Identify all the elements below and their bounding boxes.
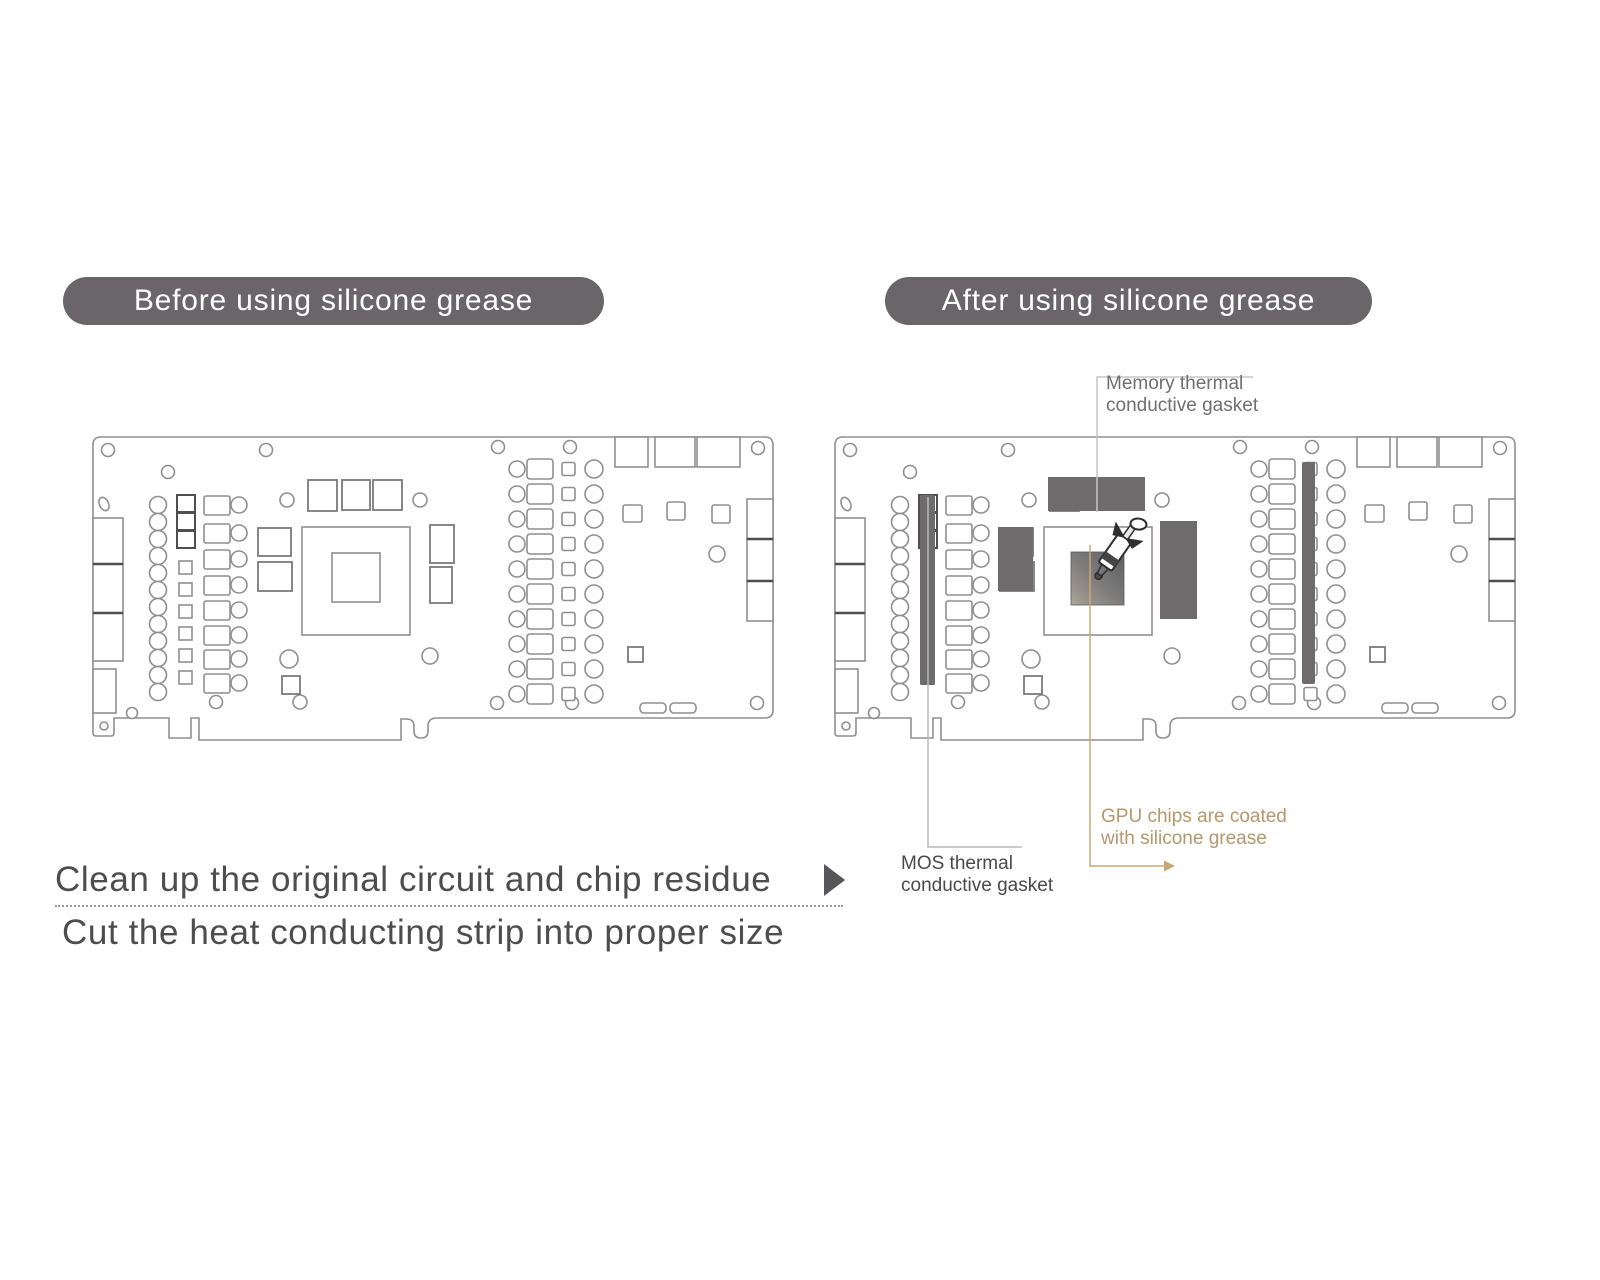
after-title-text: After using silicone grease xyxy=(942,284,1315,318)
infographic-page: Before using silicone grease After using… xyxy=(0,0,1600,1280)
memory-gasket-label-line1: Memory thermal xyxy=(1106,373,1258,395)
step-arrow-icon xyxy=(824,864,845,896)
pcb-after-board xyxy=(835,437,1515,740)
pcb-before-board xyxy=(93,437,773,740)
mos-gasket-label: MOS thermal conductive gasket xyxy=(901,853,1053,897)
memory-gasket-label-line2: conductive gasket xyxy=(1106,395,1258,417)
step2-text: Cut the heat conducting strip into prope… xyxy=(62,913,784,953)
memory-block-left xyxy=(998,527,1033,591)
before-title-text: Before using silicone grease xyxy=(134,284,533,318)
gpu-grease-label-line2: with silicone grease xyxy=(1101,828,1287,850)
memory-block-right xyxy=(1160,521,1197,619)
thermal-gasket-strip-right xyxy=(1302,462,1315,684)
gpu-callout-arrow-icon xyxy=(1164,861,1175,872)
memory-gasket-label: Memory thermal conductive gasket xyxy=(1106,373,1258,417)
before-title-pill: Before using silicone grease xyxy=(63,277,604,325)
gpu-grease-label-line1: GPU chips are coated xyxy=(1101,806,1287,828)
step1-text: Clean up the original circuit and chip r… xyxy=(55,860,771,900)
after-title-pill: After using silicone grease xyxy=(885,277,1372,325)
mos-gasket-label-line2: conductive gasket xyxy=(901,875,1053,897)
diagram-canvas xyxy=(0,0,1600,1280)
mos-gasket-label-line1: MOS thermal xyxy=(901,853,1053,875)
gpu-grease-label: GPU chips are coated with silicone greas… xyxy=(1101,806,1287,850)
dotted-divider xyxy=(55,905,843,907)
